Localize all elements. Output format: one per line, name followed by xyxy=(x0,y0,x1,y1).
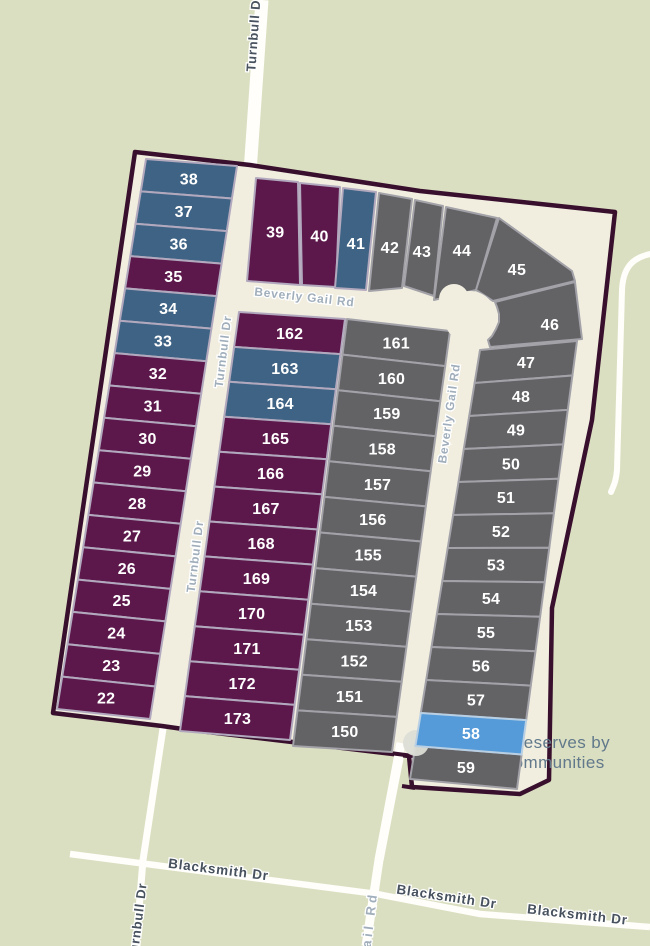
svg-text:28: 28 xyxy=(128,496,146,513)
svg-text:151: 151 xyxy=(336,689,363,706)
svg-text:155: 155 xyxy=(355,547,382,564)
svg-text:162: 162 xyxy=(276,326,303,343)
svg-text:163: 163 xyxy=(271,361,298,378)
svg-text:37: 37 xyxy=(175,204,193,221)
svg-text:39: 39 xyxy=(266,224,284,241)
svg-text:45: 45 xyxy=(508,262,527,279)
svg-text:54: 54 xyxy=(482,591,500,608)
svg-text:34: 34 xyxy=(159,301,177,318)
svg-text:25: 25 xyxy=(112,593,130,610)
svg-text:27: 27 xyxy=(123,528,141,545)
svg-text:170: 170 xyxy=(238,606,265,623)
svg-text:31: 31 xyxy=(144,399,162,416)
svg-text:52: 52 xyxy=(492,524,510,541)
svg-text:35: 35 xyxy=(164,269,182,286)
svg-text:44: 44 xyxy=(453,243,472,260)
svg-text:164: 164 xyxy=(266,396,293,413)
svg-text:159: 159 xyxy=(373,406,400,423)
svg-text:165: 165 xyxy=(262,431,289,448)
svg-text:43: 43 xyxy=(413,244,432,261)
svg-text:24: 24 xyxy=(107,626,125,643)
svg-text:158: 158 xyxy=(369,441,396,458)
svg-text:152: 152 xyxy=(341,653,368,670)
svg-text:46: 46 xyxy=(541,317,560,334)
svg-text:48: 48 xyxy=(512,389,530,406)
svg-text:51: 51 xyxy=(497,490,515,507)
svg-text:59: 59 xyxy=(457,760,475,777)
svg-text:49: 49 xyxy=(507,423,525,440)
svg-text:56: 56 xyxy=(472,659,490,676)
svg-text:173: 173 xyxy=(224,711,251,728)
svg-text:171: 171 xyxy=(233,641,260,658)
svg-text:168: 168 xyxy=(247,536,274,553)
svg-text:26: 26 xyxy=(118,561,136,578)
svg-text:38: 38 xyxy=(180,172,198,189)
svg-text:172: 172 xyxy=(228,676,255,693)
svg-text:166: 166 xyxy=(257,466,284,483)
svg-text:41: 41 xyxy=(347,236,366,253)
svg-text:161: 161 xyxy=(383,335,410,352)
svg-text:33: 33 xyxy=(154,334,172,351)
svg-text:40: 40 xyxy=(310,228,328,245)
svg-text:23: 23 xyxy=(102,658,120,675)
svg-text:167: 167 xyxy=(252,501,279,518)
svg-text:53: 53 xyxy=(487,558,505,575)
svg-text:58: 58 xyxy=(462,726,480,743)
svg-text:32: 32 xyxy=(149,366,167,383)
svg-text:22: 22 xyxy=(97,691,115,708)
svg-text:47: 47 xyxy=(517,355,535,372)
svg-text:153: 153 xyxy=(345,618,372,635)
svg-text:157: 157 xyxy=(364,477,391,494)
svg-text:42: 42 xyxy=(381,240,400,257)
svg-text:30: 30 xyxy=(138,431,156,448)
svg-text:36: 36 xyxy=(169,236,187,253)
svg-text:154: 154 xyxy=(350,583,377,600)
svg-text:50: 50 xyxy=(502,456,520,473)
svg-text:156: 156 xyxy=(359,512,386,529)
svg-text:29: 29 xyxy=(133,464,151,481)
svg-text:169: 169 xyxy=(243,571,270,588)
svg-text:57: 57 xyxy=(467,692,485,709)
svg-text:150: 150 xyxy=(331,724,358,741)
svg-text:55: 55 xyxy=(477,625,495,642)
svg-text:160: 160 xyxy=(378,371,405,388)
